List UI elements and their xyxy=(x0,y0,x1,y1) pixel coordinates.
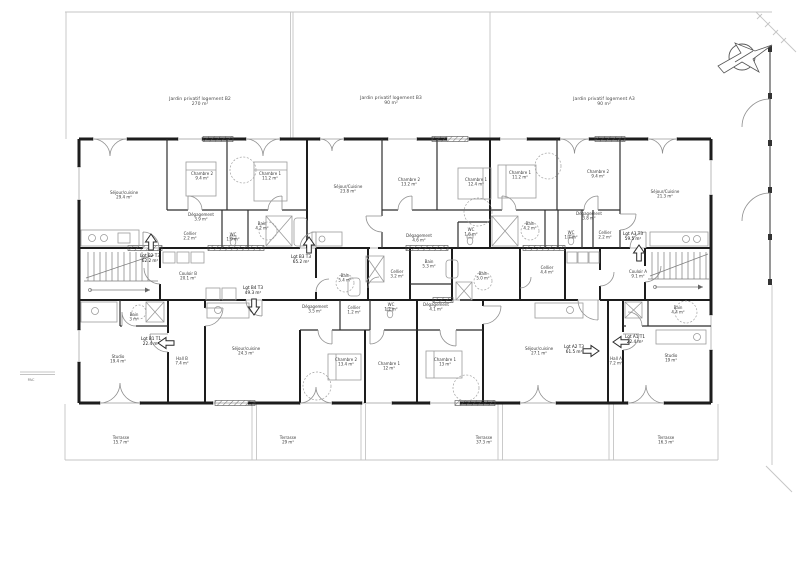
room-label: Séjour/cuisine29.4 m² xyxy=(110,190,139,200)
room-label: WC1.6 m² xyxy=(464,227,478,237)
terrace-label: Terrasse29 m² xyxy=(279,435,297,445)
room-label: Chambre 111.2 m² xyxy=(259,171,282,181)
room-label: Studio19.4 m² xyxy=(110,354,126,364)
entrance-arrow-b3 xyxy=(304,237,315,253)
room-label: Bain3 m² xyxy=(129,312,139,322)
unit-label-b3: Lgt B3 T365.2 m² xyxy=(291,254,311,264)
unit-label-a2: Lgt A2 T361.5 m² xyxy=(564,344,584,354)
entrance-arrow-a2 xyxy=(583,346,599,357)
boundary-wall xyxy=(742,46,772,285)
room-label: Chambre 111.2 m² xyxy=(509,170,532,180)
room-label: Bain4.2 m² xyxy=(255,221,269,231)
room-label: Chambre 29.4 m² xyxy=(191,171,214,181)
room-label: Chambre 29.4 m² xyxy=(587,169,610,179)
room-label: Dégagement3.9 m² xyxy=(188,212,214,222)
room-label: WC1.2 m² xyxy=(384,302,398,312)
storage-boxes xyxy=(163,252,599,300)
unit-label-a1: Lgt A1 T122.4 m² xyxy=(625,334,645,344)
room-label: Studio19 m² xyxy=(665,353,678,363)
entrance-arrow-b4 xyxy=(249,299,260,315)
garden-labels: Jardin privatif logement B2270 m² Jardin… xyxy=(168,95,635,107)
room-label: Séjour/cuisine27.1 m² xyxy=(525,346,554,356)
unit-label-a3: Lgt A3 T359.5 m² xyxy=(623,231,643,241)
site-boundaries xyxy=(20,12,796,492)
staircase-a xyxy=(648,252,710,290)
room-label: Chambre 112 m² xyxy=(378,361,401,371)
room-label: Hall A7.2 m² xyxy=(609,356,623,366)
unit-label-b4: Lgt B4 T349.3 m² xyxy=(243,285,263,295)
room-labels: Séjour/cuisine29.4 m² Chambre 29.4 m² Ch… xyxy=(110,169,685,371)
room-label: Dégagement4.6 m² xyxy=(406,233,432,243)
garden-label: Jardin privatif logement B2270 m² xyxy=(168,96,231,107)
room-label: WC1.9 m² xyxy=(226,232,240,242)
room-label: Cellier3.2 m² xyxy=(390,269,404,279)
unit-label-b1: Lgt B1 T122.4 m² xyxy=(141,336,161,346)
room-label: Couloir A9.1 m² xyxy=(629,269,647,279)
room-label: Bain4.4 m² xyxy=(671,305,685,315)
room-label: Chambre 112.4 m² xyxy=(465,177,488,187)
room-label: Cellier2.2 m² xyxy=(183,231,197,241)
garden-label: Jardin privatif logement A390 m² xyxy=(572,96,635,107)
floor-plan-drawing: Jardin privatif logement B2270 m² Jardin… xyxy=(0,0,800,566)
unit-label-b2: Lgt B2 T362.2 m² xyxy=(140,253,160,263)
room-label: Dégagement3.8 m² xyxy=(576,211,602,221)
room-label: WC1.7 m² xyxy=(564,230,578,240)
room-label: Bain5.3 m² xyxy=(422,259,436,269)
terrace-labels: Terrasse15.7 m² Terrasse29 m² Terrasse37… xyxy=(112,435,675,445)
room-label: Dégagement3.5 m² xyxy=(302,304,328,314)
room-label: Séjour/Cuisine23.8 m² xyxy=(334,184,363,194)
room-label: Cellier2.2 m² xyxy=(598,230,612,240)
room-label: Séjour/Cuisine21.3 m² xyxy=(651,189,680,199)
room-label: Bain5.4 m² xyxy=(338,273,352,283)
room-label: Bain5.0 m² xyxy=(476,271,490,281)
room-label: Chambre 213.2 m² xyxy=(398,177,421,187)
terrace-label: Terrasse15.7 m² xyxy=(112,435,130,445)
terrace-label: Terrasse16.3 m² xyxy=(657,435,675,445)
pac-label: PAC xyxy=(28,378,35,382)
entrance-arrow-a3 xyxy=(634,245,645,261)
room-label: Chambre 113 m² xyxy=(434,357,457,367)
north-arrow-icon xyxy=(718,43,772,73)
terrace-label: Terrasse37.3 m² xyxy=(475,435,493,445)
room-label: Cellier4.4 m² xyxy=(540,265,554,275)
room-label: Cellier1.2 m² xyxy=(347,305,361,315)
garden-label: Jardin privatif logement B390 m² xyxy=(359,95,422,106)
room-label: Chambre 213.4 m² xyxy=(335,357,358,367)
room-label: Bain4.2 m² xyxy=(523,221,537,231)
floor-plan-page: Jardin privatif logement B2270 m² Jardin… xyxy=(0,0,800,566)
room-label: Couloir B20.1 m² xyxy=(179,271,197,281)
room-label: Hall B7.4 m² xyxy=(175,356,189,366)
room-label: Séjour/cuisine24.3 m² xyxy=(232,346,261,356)
room-label: Dégagement4.1 m² xyxy=(423,302,449,312)
